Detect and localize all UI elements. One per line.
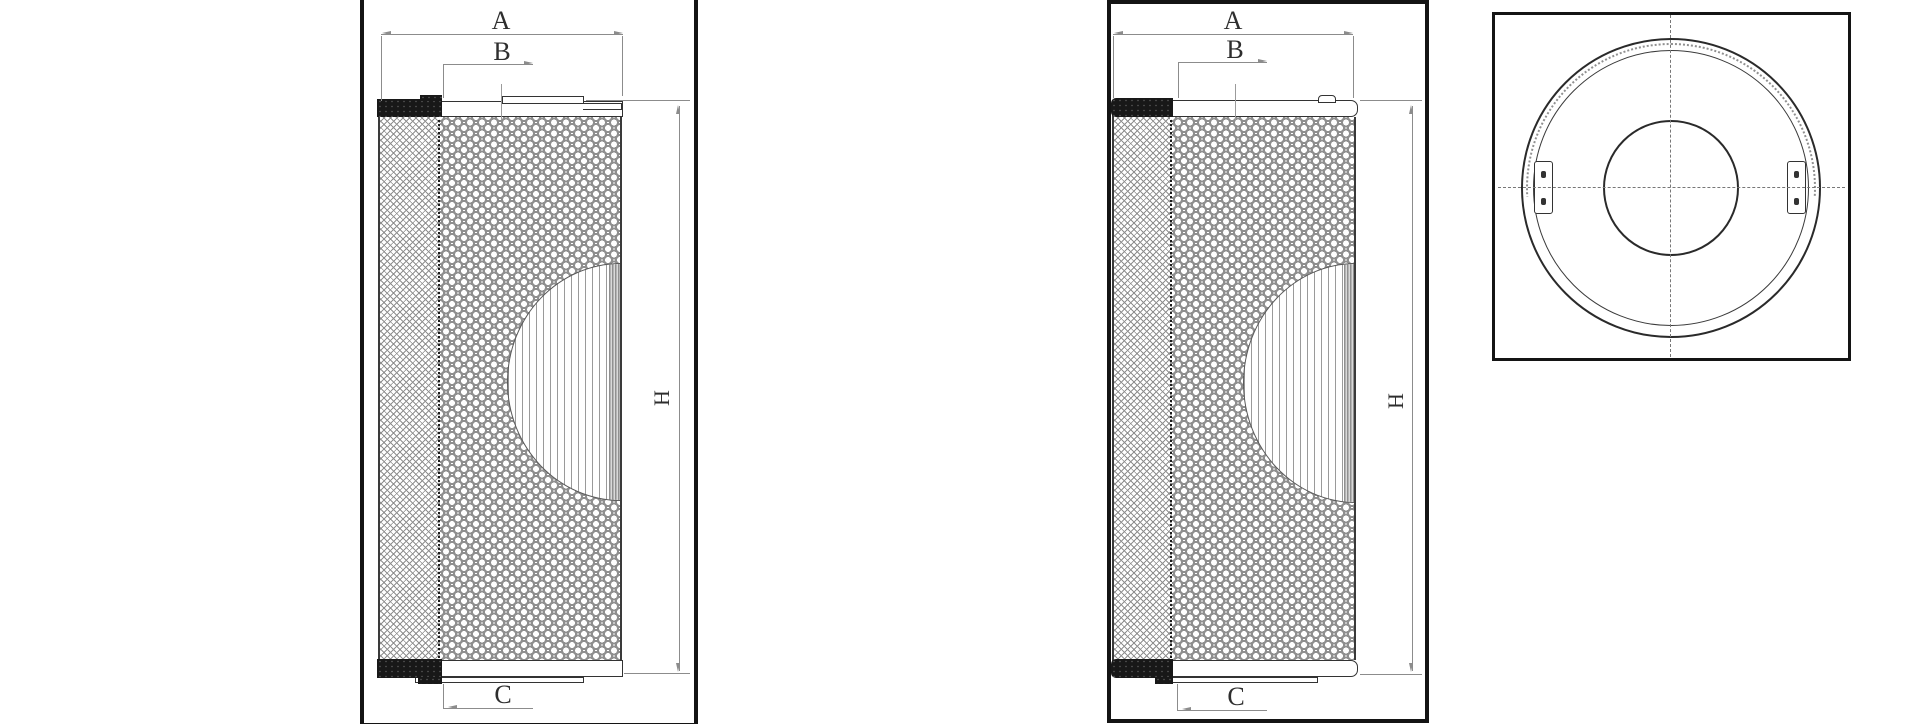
view1-ext-line-b: [443, 64, 444, 98]
view1-body-right-edge: [620, 117, 622, 660]
dim-arrow-icon: [524, 61, 536, 65]
view2-centerline-mark: [1235, 84, 1236, 120]
view1-top-cap-step: [583, 103, 622, 110]
clip-slot: [1794, 198, 1799, 205]
dim-arrow-icon: [1409, 102, 1413, 114]
view1-centerline-mark: [501, 84, 502, 120]
view2-ext-line-b: [1178, 62, 1179, 98]
view2-dim-label-a: A: [1218, 8, 1248, 34]
view1-ext-line-a-left: [381, 36, 382, 101]
view1-bottom-seal-lip: [418, 677, 442, 684]
top-view-horizontal-centerline: [1498, 187, 1845, 188]
view2-body-right-edge: [1354, 117, 1356, 660]
view2-ext-line-h-top: [1360, 100, 1422, 101]
view1-top-cap-seal: [377, 99, 442, 117]
view2-top-cap-nub: [1318, 95, 1336, 103]
clip-slot: [1541, 198, 1546, 205]
view1-top-cap-lip: [502, 96, 584, 104]
view2-ext-line-h-bottom: [1360, 674, 1422, 675]
dim-arrow-icon: [1111, 31, 1123, 35]
dim-arrow-icon: [614, 31, 626, 35]
dim-arrow-icon: [1344, 31, 1356, 35]
clip-slot: [1794, 171, 1799, 178]
view1-dim-line-h: [679, 106, 680, 671]
view1-ext-line-c: [443, 684, 444, 708]
view2-ext-line-a-right: [1353, 36, 1354, 98]
view2-dim-line-h: [1412, 106, 1413, 671]
view2-pleat-edge-hatch: [1112, 115, 1172, 662]
dim-arrow-icon: [445, 705, 457, 709]
view1-pleat-edge-hatch: [378, 115, 440, 662]
top-view-vertical-centerline: [1670, 15, 1671, 357]
dim-arrow-icon: [379, 31, 391, 35]
view2-ext-line-a-left: [1113, 36, 1114, 98]
clip-slot: [1541, 171, 1546, 178]
view1-dim-label-h: H: [651, 383, 673, 413]
view2-bottom-cap-seal: [1111, 659, 1173, 678]
view1-dim-label-c: C: [488, 682, 518, 708]
view2-top-cap-seal: [1111, 98, 1173, 117]
dim-arrow-icon: [1179, 707, 1191, 711]
view2-dim-label-b: B: [1220, 37, 1250, 63]
view2-dim-label-h: H: [1385, 386, 1407, 416]
dim-arrow-icon: [1258, 59, 1270, 63]
view1-bottom-cap-seal: [377, 659, 442, 678]
view1-ext-line-h-top: [586, 100, 690, 101]
view1-dim-label-b: B: [487, 39, 517, 65]
drawing-sheet: A B C H A B C H: [0, 0, 1920, 724]
view1-dim-label-a: A: [486, 8, 516, 34]
view2-ext-line-c: [1177, 684, 1178, 710]
top-view-core-tube-circle: [1603, 120, 1739, 256]
view2-bottom-seal-lip: [1155, 677, 1173, 684]
view1-ext-line-h-bottom: [624, 673, 690, 674]
view1-top-seal-lip: [420, 95, 442, 101]
view2-dim-label-c: C: [1221, 684, 1251, 710]
dim-arrow-icon: [676, 102, 680, 114]
view1-ext-line-a-right: [622, 36, 623, 96]
